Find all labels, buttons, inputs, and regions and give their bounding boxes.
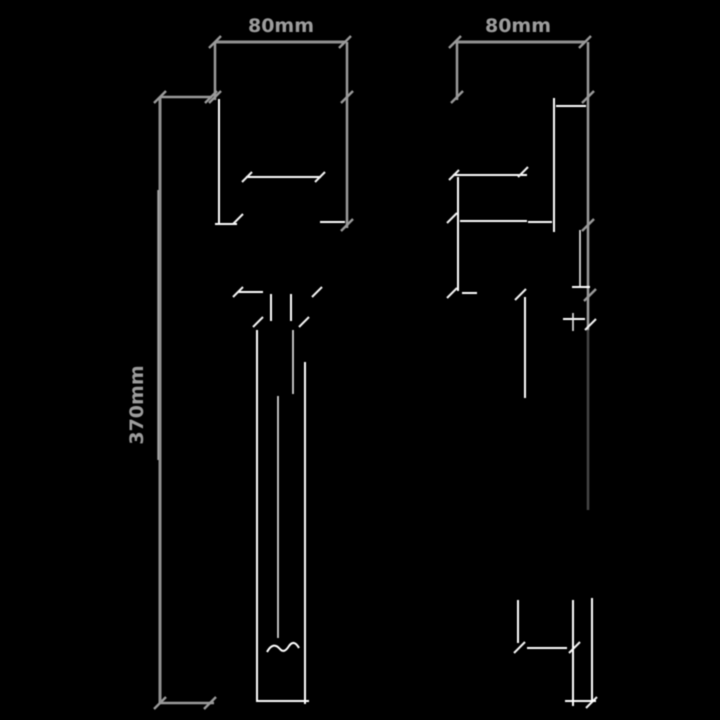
tick — [299, 317, 309, 327]
side-depth-label: 80mm — [485, 15, 551, 37]
tick — [569, 642, 580, 653]
front-view: 80mm 370mm — [126, 15, 353, 709]
dimension-diagram: 80mm 370mm — [0, 0, 720, 720]
front-width-dimension: 80mm — [209, 15, 353, 231]
tick — [312, 287, 322, 297]
side-depth-dimension: 80mm — [449, 15, 591, 510]
tick — [253, 317, 263, 327]
tick — [233, 214, 243, 224]
tick — [447, 213, 457, 223]
diagram-svg: 80mm 370mm — [0, 0, 720, 720]
front-height-label: 370mm — [126, 365, 148, 444]
front-width-label: 80mm — [248, 15, 314, 37]
side-outline-fragments — [447, 98, 596, 706]
side-view: 80mm — [447, 15, 597, 708]
tick — [514, 642, 525, 653]
front-outline-fragments — [215, 99, 345, 704]
front-height-dimension: 370mm — [126, 91, 217, 709]
tick — [447, 288, 457, 298]
tick — [584, 289, 596, 301]
tick — [585, 319, 596, 330]
front-tube-squiggle — [267, 643, 299, 652]
